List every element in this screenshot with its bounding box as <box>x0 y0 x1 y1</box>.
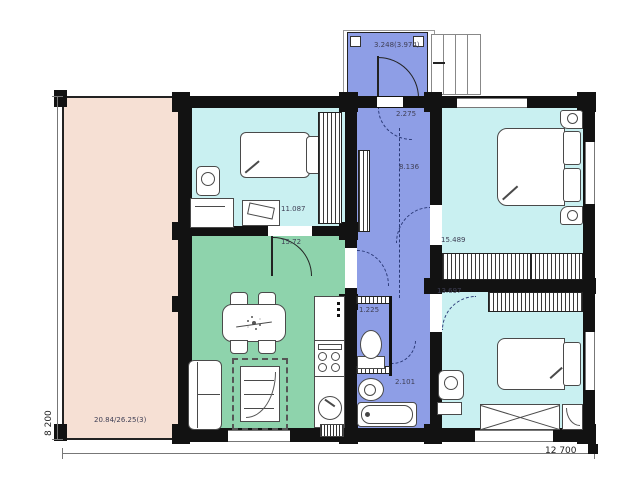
window-bottom-living <box>228 430 290 442</box>
joint <box>172 222 190 240</box>
fridge-dot <box>337 302 340 305</box>
label-hall-area: 8.136 <box>399 163 419 171</box>
stove-burner <box>318 363 327 372</box>
dim-line-left <box>57 96 58 440</box>
label-terrace-area: 20.84/26.25(3) <box>94 416 146 424</box>
wc-wall-top <box>356 296 392 304</box>
label-wc-area: 1.225 <box>359 306 379 314</box>
label-living-area: 15.72 <box>281 238 301 246</box>
office-chair-seat <box>444 376 458 390</box>
stove-burner <box>318 352 327 361</box>
dim-corner-square <box>588 444 598 454</box>
doorway-living <box>268 226 312 236</box>
wc-wall-right <box>389 296 392 376</box>
joint <box>172 296 190 312</box>
fridge-dot <box>337 308 340 311</box>
stove-burner <box>331 352 340 361</box>
sofa <box>188 360 222 430</box>
dishwasher <box>320 424 344 437</box>
joint <box>339 92 358 112</box>
step-line-1 <box>443 35 444 94</box>
joint <box>339 222 358 240</box>
entry-steps <box>431 34 481 95</box>
label-bath-lobby-area: 2.101 <box>395 378 415 386</box>
toilet-bowl <box>360 330 382 359</box>
doorway-bedroom-bottom <box>430 294 442 332</box>
dim-tick <box>52 439 63 440</box>
window-bottom-bedroom <box>475 430 553 442</box>
bathtub-drain <box>365 412 370 417</box>
nightstand-lamp <box>567 210 578 221</box>
hall-wardrobe <box>358 150 370 232</box>
window-right-bottom <box>585 332 595 390</box>
wall-bedrooms-divider <box>442 280 583 292</box>
sofa-back-line <box>197 362 198 428</box>
label-bedroom-top-area: 11.087 <box>281 205 306 213</box>
stove-controls <box>318 344 342 350</box>
joint <box>424 424 442 444</box>
dining-chair <box>258 340 276 354</box>
wardrobe-top-bedroom <box>318 112 342 224</box>
desk-top-bedroom <box>190 198 234 228</box>
desk-item-line <box>195 206 225 207</box>
step-line-2 <box>455 35 456 94</box>
terrace-room <box>62 96 180 440</box>
nightstand-lamp <box>567 113 578 124</box>
porch-post-left <box>350 36 361 47</box>
pillow <box>563 168 581 202</box>
joint <box>172 92 190 112</box>
dim-line-bottom <box>62 453 595 454</box>
bath-sink-basin <box>364 384 376 396</box>
hall-path-line <box>399 128 400 298</box>
stove-burner <box>331 363 340 372</box>
fridge-dot <box>337 314 340 317</box>
dim-height-label: 8 200 <box>44 410 54 436</box>
bed-single-bottom <box>497 338 565 390</box>
label-bedroom-right-top-area: 15.489 <box>441 236 466 244</box>
kitchen-divider <box>315 340 344 341</box>
dim-tick <box>52 96 63 97</box>
window-top <box>457 98 527 108</box>
pillow <box>563 131 581 165</box>
sofa-cushion-line <box>198 394 220 395</box>
floor-plan: 3.248(3.974) 20.84/26.25(3) 11.087 15.72… <box>0 0 642 502</box>
wardrobe-bedroom-right-bottom <box>488 292 583 312</box>
doorway-hall-living <box>345 248 357 288</box>
porch-doorway <box>377 97 403 107</box>
label-hall-entry-area: 2.275 <box>396 110 416 118</box>
dining-chair <box>230 340 248 354</box>
joint <box>577 92 596 112</box>
small-dresser <box>437 402 462 415</box>
terrace-corner-top <box>54 90 67 107</box>
step-line-3 <box>467 35 468 94</box>
kitchen-divider <box>315 376 344 377</box>
dim-width-label: 12 700 <box>545 446 577 456</box>
bed-single-top <box>240 132 310 178</box>
wardrobe-divider <box>530 253 532 280</box>
joint <box>172 424 190 444</box>
wardrobe-bedroom-right-top <box>442 253 583 280</box>
desk-chair-seat <box>201 172 215 186</box>
pillow <box>563 342 581 386</box>
window-right-top <box>585 142 595 204</box>
label-bedroom-right-bottom-area: 13.697 <box>437 287 462 295</box>
joint <box>424 92 442 112</box>
dim-tick <box>62 448 63 459</box>
kitchen-sink <box>318 396 342 420</box>
step-arrow <box>433 62 445 64</box>
label-porch-area: 3.248(3.974) <box>374 41 420 49</box>
